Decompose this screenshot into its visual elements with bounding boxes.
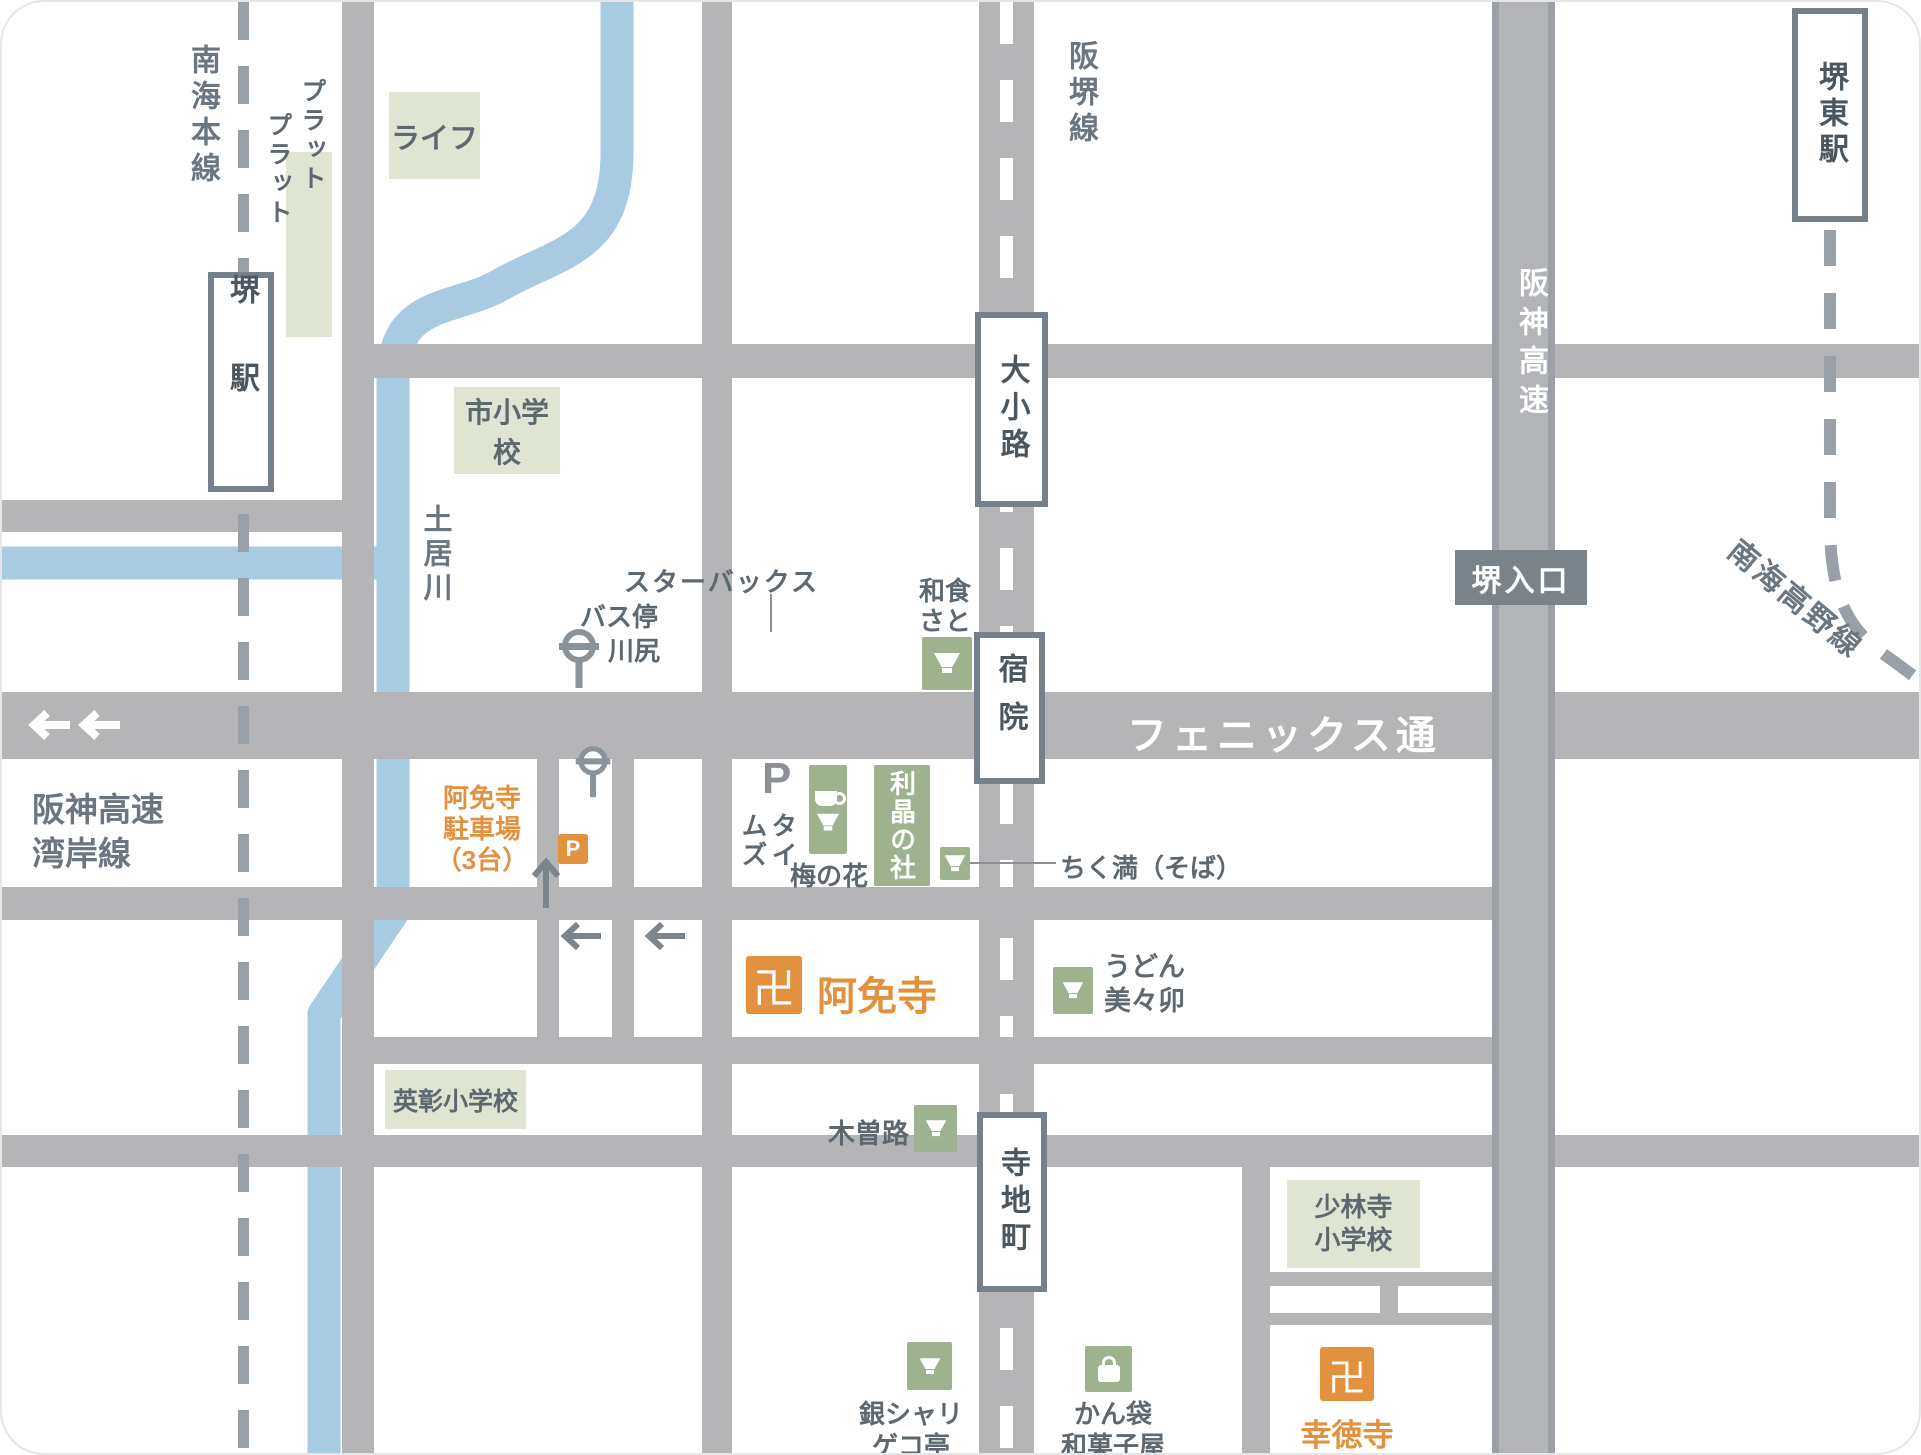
station-shukuin-label: 宿院	[988, 653, 1032, 749]
sato-line2: さと	[919, 606, 971, 636]
oneway-left-arrow-icon	[559, 920, 603, 952]
coffee-cup-icon	[815, 791, 837, 806]
kanbukuro-line2: 和菓子屋	[1061, 1431, 1165, 1455]
label-times-p: P	[762, 754, 791, 804]
mimiu-line2: 美々卯	[1104, 986, 1185, 1016]
poi-ginshari-box	[907, 1342, 952, 1390]
phoenix-left-arrow-icon	[28, 709, 72, 741]
label-starbucks: スターバックス	[624, 562, 819, 599]
label-times-col2: ムズ	[735, 812, 772, 870]
label-platplat-col2: プラット	[260, 112, 296, 228]
label-phoenix-street: フェニックス通	[1127, 703, 1441, 761]
bus-stop-icon	[557, 628, 601, 692]
label-bus-stop: バス停	[580, 597, 658, 634]
manji-icon: 卍	[753, 955, 795, 1016]
wangan-line1: 阪神高速	[32, 791, 164, 828]
risho-no-mori-label: 利晶の社	[884, 770, 921, 882]
ginshari-line2: ゲコ亭	[872, 1431, 950, 1455]
amenji-label: 阿免寺	[817, 964, 937, 1022]
restaurant-bowl-icon	[817, 813, 839, 831]
wangan-line2: 湾岸線	[32, 835, 131, 872]
amenji-parking-label: 阿免寺 駐車場 （3台）	[426, 783, 538, 876]
poi-chikuma-box	[940, 847, 970, 880]
label-kanbukuro: かん袋 和菓子屋	[1038, 1398, 1188, 1455]
poi-kisoji-box	[914, 1105, 957, 1152]
label-platplat-col1: プラット	[294, 78, 330, 194]
poi-washoku-sato-box	[922, 637, 972, 690]
phoenix-left-arrow-icon	[78, 709, 122, 741]
restaurant-bowl-icon	[919, 1358, 940, 1375]
kotokuji-label: 幸徳寺	[1290, 1410, 1404, 1455]
station-sakai-higashi-label: 堺東駅	[1808, 61, 1852, 169]
poi-kanbukuro-box	[1085, 1346, 1132, 1392]
label-ginshari-gekotei: 銀シャリ ゲコ亭	[840, 1398, 982, 1455]
label-nankai-main-line: 南海本線	[180, 44, 224, 188]
station-sakai: 堺駅	[208, 272, 274, 492]
route-map: ライフ 市小学校 英彰小学校 少林寺 小学校 利晶の社 卍 阿免寺 卍 幸徳寺 …	[0, 0, 1921, 1455]
shopping-bag-icon	[1098, 1365, 1120, 1382]
label-washoku-sato: 和食 さと	[915, 576, 975, 636]
restaurant-bowl-icon	[1063, 982, 1084, 999]
station-sakai-label: 堺駅	[219, 274, 263, 450]
building-shorinji-elementary: 少林寺 小学校	[1287, 1180, 1420, 1268]
oneway-up-arrow-icon	[531, 858, 561, 910]
eisho-elementary-label: 英彰小学校	[393, 1082, 518, 1118]
label-hankai-line: 阪堺線	[1058, 40, 1102, 148]
label-doigawa-river: 土居川	[414, 504, 456, 606]
amenji-parking-line3: （3台）	[436, 845, 528, 875]
poi-risho-no-mori-box: 利晶の社	[874, 765, 930, 886]
amenji-manji-box: 卍	[746, 956, 802, 1014]
label-bus-stop-kawajiri: 川尻	[608, 631, 660, 668]
building-life: ライフ	[389, 92, 480, 179]
label-hanshin-expwy: 阪神高速	[1508, 267, 1552, 423]
ginshari-line1: 銀シャリ	[859, 1399, 963, 1429]
sato-line1: 和食	[919, 576, 971, 606]
kanbukuro-line1: かん袋	[1074, 1399, 1152, 1429]
ichi-elementary-label: 市小学校	[454, 391, 560, 471]
label-hanshin-wangan-line: 阪神高速 湾岸線	[32, 788, 164, 876]
station-terajicho: 寺地町	[977, 1112, 1047, 1292]
poi-udon-mimiu-box	[1053, 967, 1093, 1014]
station-oshoji: 大小路	[975, 312, 1048, 507]
station-oshoji-label: 大小路	[990, 354, 1034, 465]
chikuma-connector-line	[970, 862, 1056, 864]
oneway-left-arrow-icon	[643, 920, 687, 952]
bus-stop-icon	[574, 744, 612, 802]
sign-sakai-entrance: 堺入口	[1455, 550, 1587, 605]
mimiu-line1: うどん	[1104, 952, 1185, 982]
shorinji-line1: 少林寺	[1314, 1192, 1392, 1222]
restaurant-bowl-icon	[934, 653, 960, 674]
kotokuji-manji-box: 卍	[1320, 1347, 1374, 1401]
station-shukuin: 宿院	[974, 632, 1045, 784]
sakai-entrance-label: 堺入口	[1472, 556, 1571, 600]
poi-starbucks-umenohana-box	[809, 765, 847, 854]
shorinji-line2: 小学校	[1314, 1225, 1392, 1255]
building-eisho-elementary: 英彰小学校	[385, 1070, 526, 1129]
restaurant-bowl-icon	[925, 1120, 946, 1137]
p-icon: P	[566, 836, 581, 862]
restaurant-bowl-icon	[945, 855, 966, 872]
label-umenohana: 梅の花	[790, 856, 868, 893]
life-label: ライフ	[391, 115, 478, 157]
amenji-parking-line2: 駐車場	[443, 814, 521, 844]
manji-icon: 卍	[1328, 1347, 1366, 1402]
label-kisoji: 木曽路	[828, 1112, 909, 1151]
label-chikuma-soba: ちく満（そば）	[1060, 848, 1242, 885]
station-terajicho-label: 寺地町	[990, 1147, 1034, 1258]
starbucks-connector-line	[770, 594, 772, 632]
station-sakai-higashi: 堺東駅	[1792, 8, 1868, 222]
label-udon-mimiu: うどん 美々卯	[1104, 950, 1185, 1018]
amenji-parking-line1: 阿免寺	[443, 783, 521, 813]
parking-p-box: P	[558, 834, 588, 864]
building-ichi-elementary: 市小学校	[454, 387, 560, 474]
